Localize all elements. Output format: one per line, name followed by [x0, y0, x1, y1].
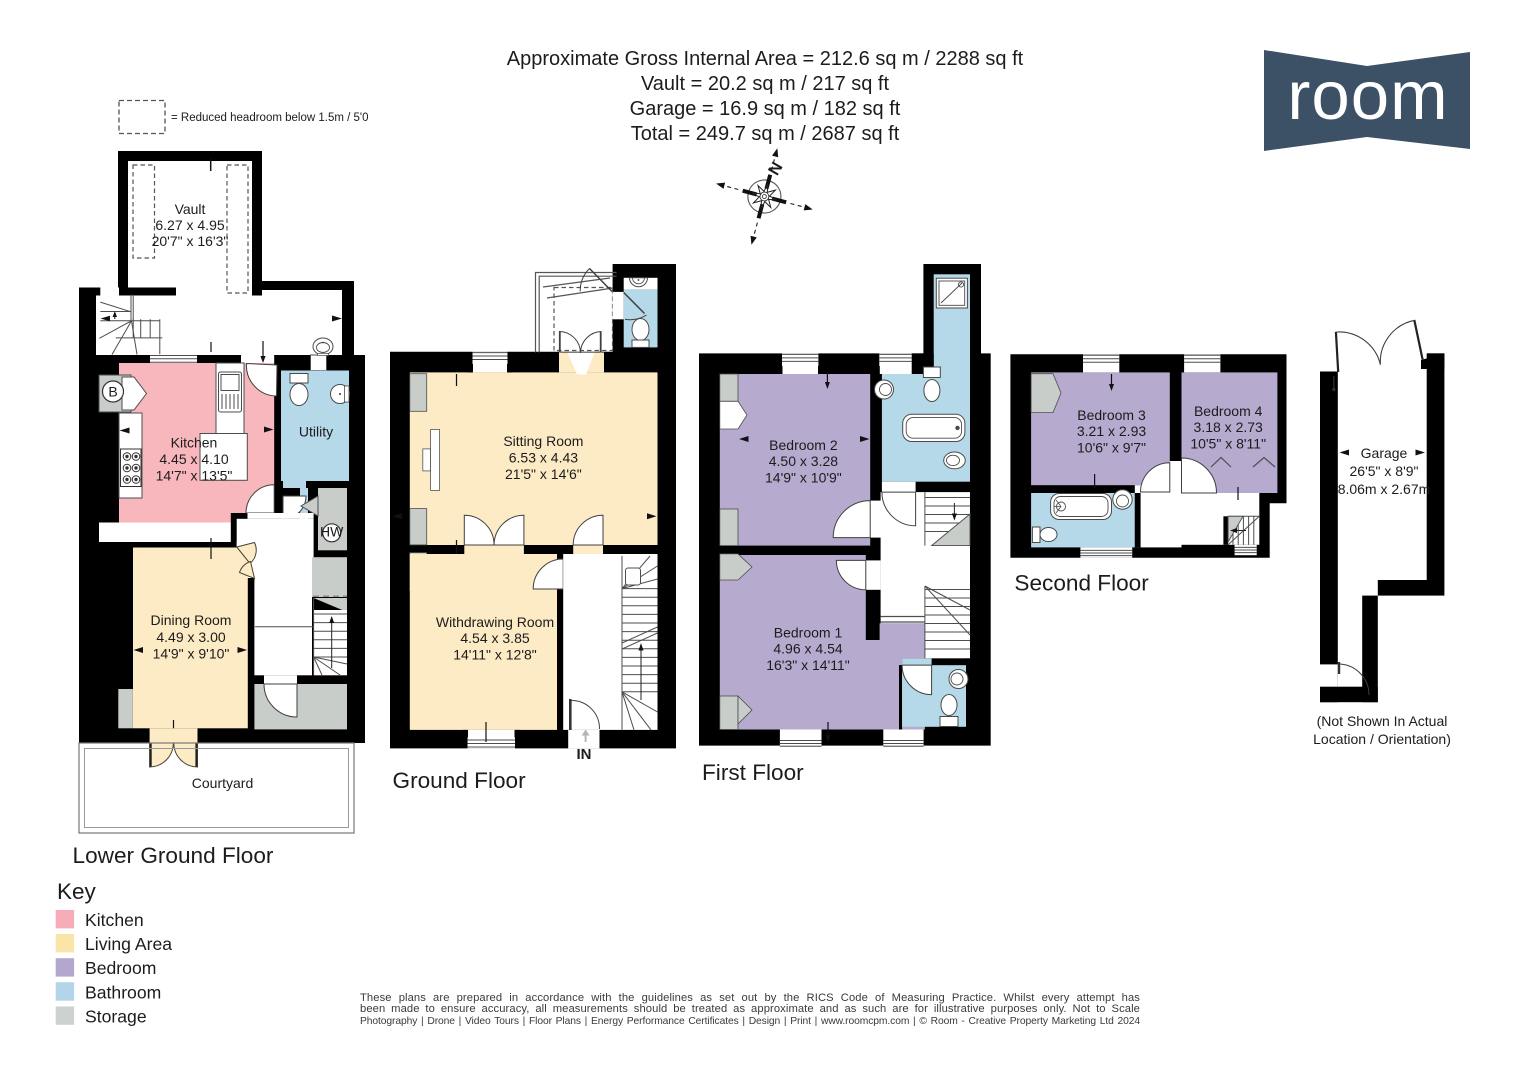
svg-text:IN: IN: [577, 746, 592, 763]
svg-text:(Not Shown In ActualLocation /: (Not Shown In ActualLocation / Orientati…: [1313, 713, 1451, 747]
svg-text:Courtyard: Courtyard: [192, 775, 253, 791]
svg-text:B: B: [108, 384, 117, 400]
svg-text:Storage: Storage: [85, 1006, 147, 1026]
svg-text:Bedroom 33.21 x 2.9310'6" x 9': Bedroom 33.21 x 2.9310'6" x 9'7": [1077, 407, 1146, 456]
svg-text:Vault = 20.2 sq m / 217 sq ft: Vault = 20.2 sq m / 217 sq ft: [641, 73, 890, 95]
svg-text:= Reduced headroom below 1.5m: = Reduced headroom below 1.5m / 5'0: [171, 112, 369, 124]
svg-text:room: room: [1287, 57, 1448, 134]
svg-text:Bathroom: Bathroom: [85, 982, 161, 1002]
svg-text:N: N: [764, 159, 786, 178]
svg-text:Total = 249.7 sq m / 2687 sq f: Total = 249.7 sq m / 2687 sq ft: [631, 123, 900, 145]
svg-text:Second Floor: Second Floor: [1014, 571, 1149, 596]
svg-text:Kitchen: Kitchen: [85, 910, 144, 930]
svg-text:Bedroom 43.18 x 2.7310'5" x 8': Bedroom 43.18 x 2.7310'5" x 8'11": [1190, 403, 1266, 452]
svg-text:Bedroom: Bedroom: [85, 958, 156, 978]
svg-text:Bedroom 14.96 x 4.5416'3" x 14: Bedroom 14.96 x 4.5416'3" x 14'11": [766, 625, 850, 674]
svg-text:Key: Key: [57, 879, 97, 904]
svg-text:Ground Floor: Ground Floor: [393, 768, 527, 793]
svg-text:Approximate Gross Internal Are: Approximate Gross Internal Area = 212.6 …: [507, 48, 1024, 70]
svg-text:HW: HW: [320, 524, 344, 540]
svg-text:Bedroom 24.50 x 3.2814'9" x 10: Bedroom 24.50 x 3.2814'9" x 10'9": [765, 437, 842, 486]
svg-text:Lower Ground Floor: Lower Ground Floor: [73, 843, 274, 868]
svg-text:Dining Room4.49 x 3.0014'9" x: Dining Room4.49 x 3.0014'9" x 9'10": [151, 612, 232, 662]
svg-text:Living Area: Living Area: [85, 934, 172, 954]
svg-text:Sitting Room6.53 x 4.4321'5" x: Sitting Room6.53 x 4.4321'5" x 14'6": [503, 433, 583, 482]
svg-text:Utility: Utility: [299, 424, 333, 440]
svg-text:First Floor: First Floor: [702, 760, 804, 785]
svg-text:Garage = 16.9 sq m / 182 sq ft: Garage = 16.9 sq m / 182 sq ft: [630, 98, 901, 120]
